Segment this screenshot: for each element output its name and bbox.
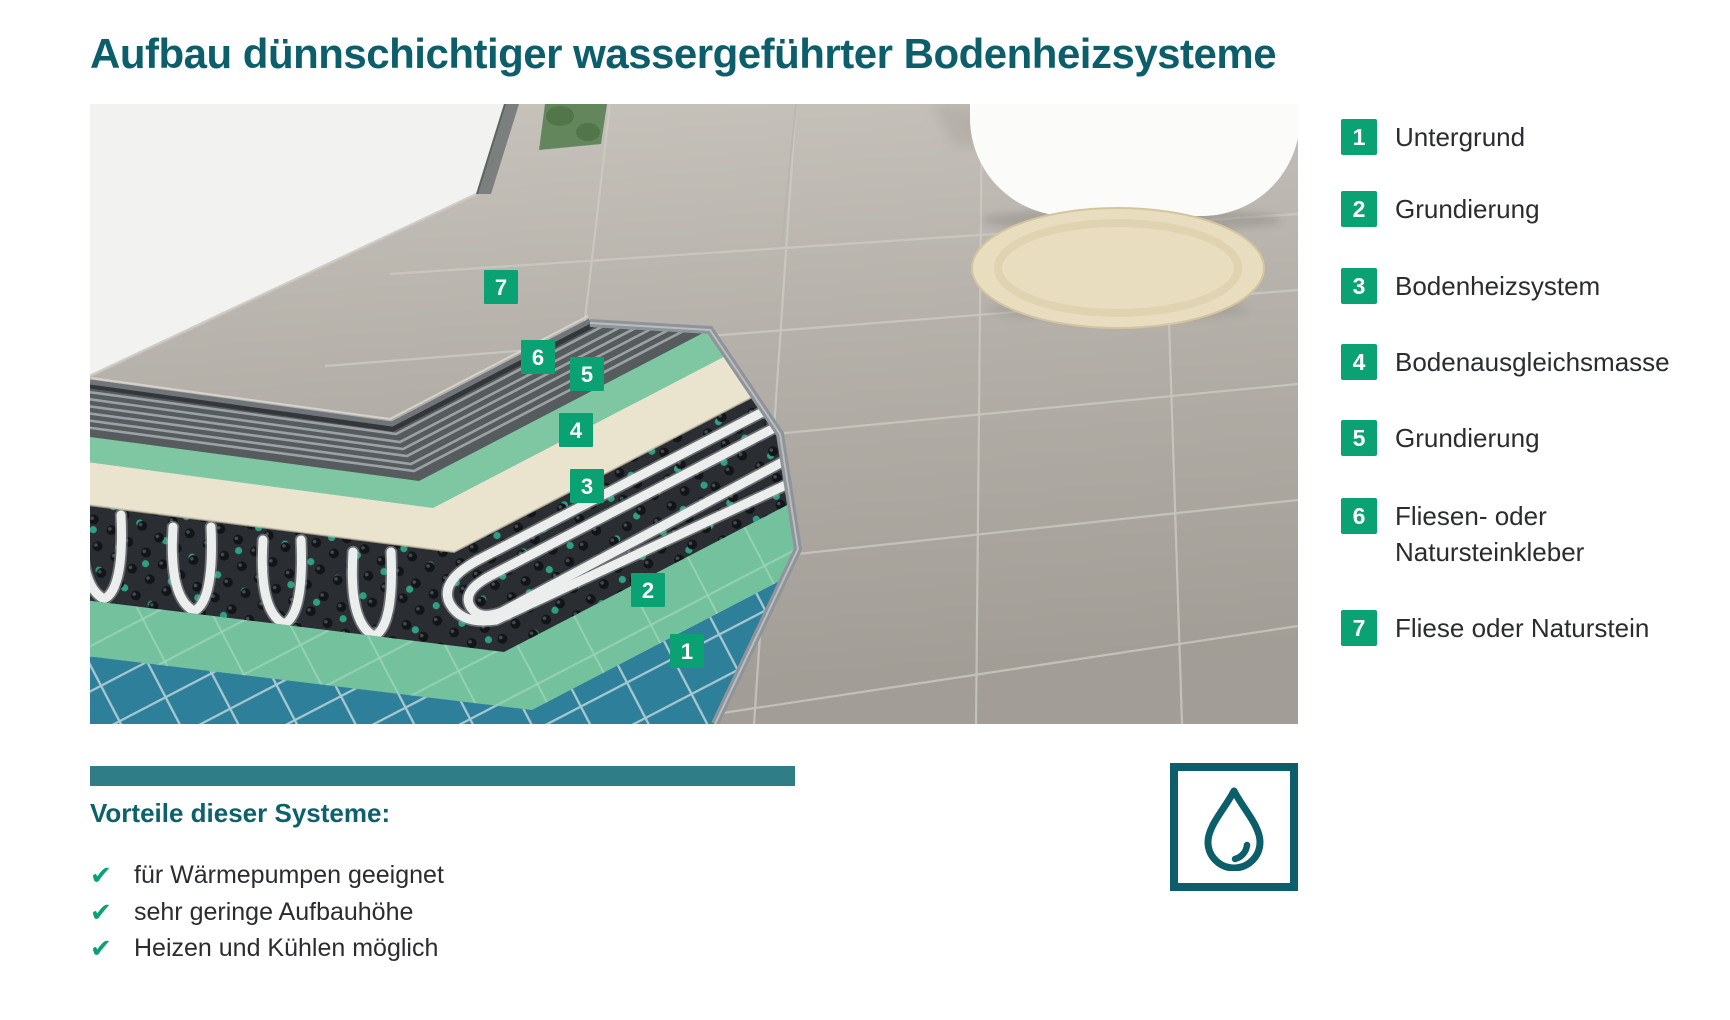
advantages-heading: Vorteile dieser Systeme: <box>90 798 390 829</box>
legend-label: Fliesen- oder Natursteinkleber <box>1395 498 1584 570</box>
layer-tag-2: 2 <box>631 573 665 607</box>
legend-badge-6: 6 <box>1341 498 1377 534</box>
layer-tag-1: 1 <box>670 634 704 668</box>
layer-tag-5: 5 <box>570 357 604 391</box>
legend-item-bodenheizsystem: 3 Bodenheizsystem <box>1341 268 1600 304</box>
svg-text:4: 4 <box>570 418 583 443</box>
legend-label: Grundierung <box>1395 420 1540 456</box>
water-drop-badge <box>1170 763 1298 891</box>
svg-text:7: 7 <box>495 275 507 300</box>
diagram-image: 7 6 5 4 3 2 1 <box>90 104 1298 724</box>
floor-heating-cutaway-illustration: 7 6 5 4 3 2 1 <box>90 104 1298 724</box>
legend-item-grundierung-2: 2 Grundierung <box>1341 191 1540 227</box>
legend-badge-7: 7 <box>1341 610 1377 646</box>
legend-badge-5: 5 <box>1341 420 1377 456</box>
page: { "title": "Aufbau dünnschichtiger wasse… <box>0 0 1730 1020</box>
legend-label: Fliese oder Naturstein <box>1395 610 1649 646</box>
plants-through-glass <box>539 104 607 150</box>
layer-tag-4: 4 <box>559 413 593 447</box>
svg-text:3: 3 <box>581 474 593 499</box>
bathtub <box>970 104 1298 216</box>
advantage-text: für Wärmepumpen geeignet <box>134 861 444 890</box>
water-drop-icon <box>1199 783 1269 871</box>
svg-text:6: 6 <box>532 345 544 370</box>
advantage-text: Heizen und Kühlen möglich <box>134 934 438 963</box>
checkmark-icon: ✔ <box>90 860 134 891</box>
legend-label: Bodenheizsystem <box>1395 268 1600 304</box>
legend-badge-3: 3 <box>1341 268 1377 304</box>
legend-badge-1: 1 <box>1341 119 1377 155</box>
layer-tag-3: 3 <box>570 469 604 503</box>
svg-text:5: 5 <box>581 362 593 387</box>
legend-label: Untergrund <box>1395 119 1525 155</box>
legend-item-fliese-naturstein: 7 Fliese oder Naturstein <box>1341 610 1649 646</box>
checkmark-icon: ✔ <box>90 897 134 928</box>
legend-item-fliesenkleber: 6 Fliesen- oder Natursteinkleber <box>1341 498 1584 570</box>
legend-label: Grundierung <box>1395 191 1540 227</box>
checkmark-icon: ✔ <box>90 933 134 964</box>
svg-text:2: 2 <box>642 578 654 603</box>
legend-badge-2: 2 <box>1341 191 1377 227</box>
layer-tag-7: 7 <box>484 270 518 304</box>
round-rug <box>972 208 1264 328</box>
legend-badge-4: 4 <box>1341 344 1377 380</box>
advantage-item: ✔ Heizen und Kühlen möglich <box>90 933 438 963</box>
page-title: Aufbau dünnschichtiger wassergeführter B… <box>90 30 1276 78</box>
legend-item-bodenausgleichsmasse: 4 Bodenausgleichsmasse <box>1341 344 1670 380</box>
advantage-text: sehr geringe Aufbauhöhe <box>134 898 413 927</box>
svg-text:1: 1 <box>681 639 693 664</box>
layer-tag-6: 6 <box>521 340 555 374</box>
divider-bar <box>90 766 795 786</box>
legend-label: Bodenausgleichsmasse <box>1395 344 1670 380</box>
advantage-item: ✔ sehr geringe Aufbauhöhe <box>90 897 413 927</box>
legend-item-untergrund: 1 Untergrund <box>1341 119 1525 155</box>
legend-item-grundierung-5: 5 Grundierung <box>1341 420 1540 456</box>
advantage-item: ✔ für Wärmepumpen geeignet <box>90 860 444 890</box>
